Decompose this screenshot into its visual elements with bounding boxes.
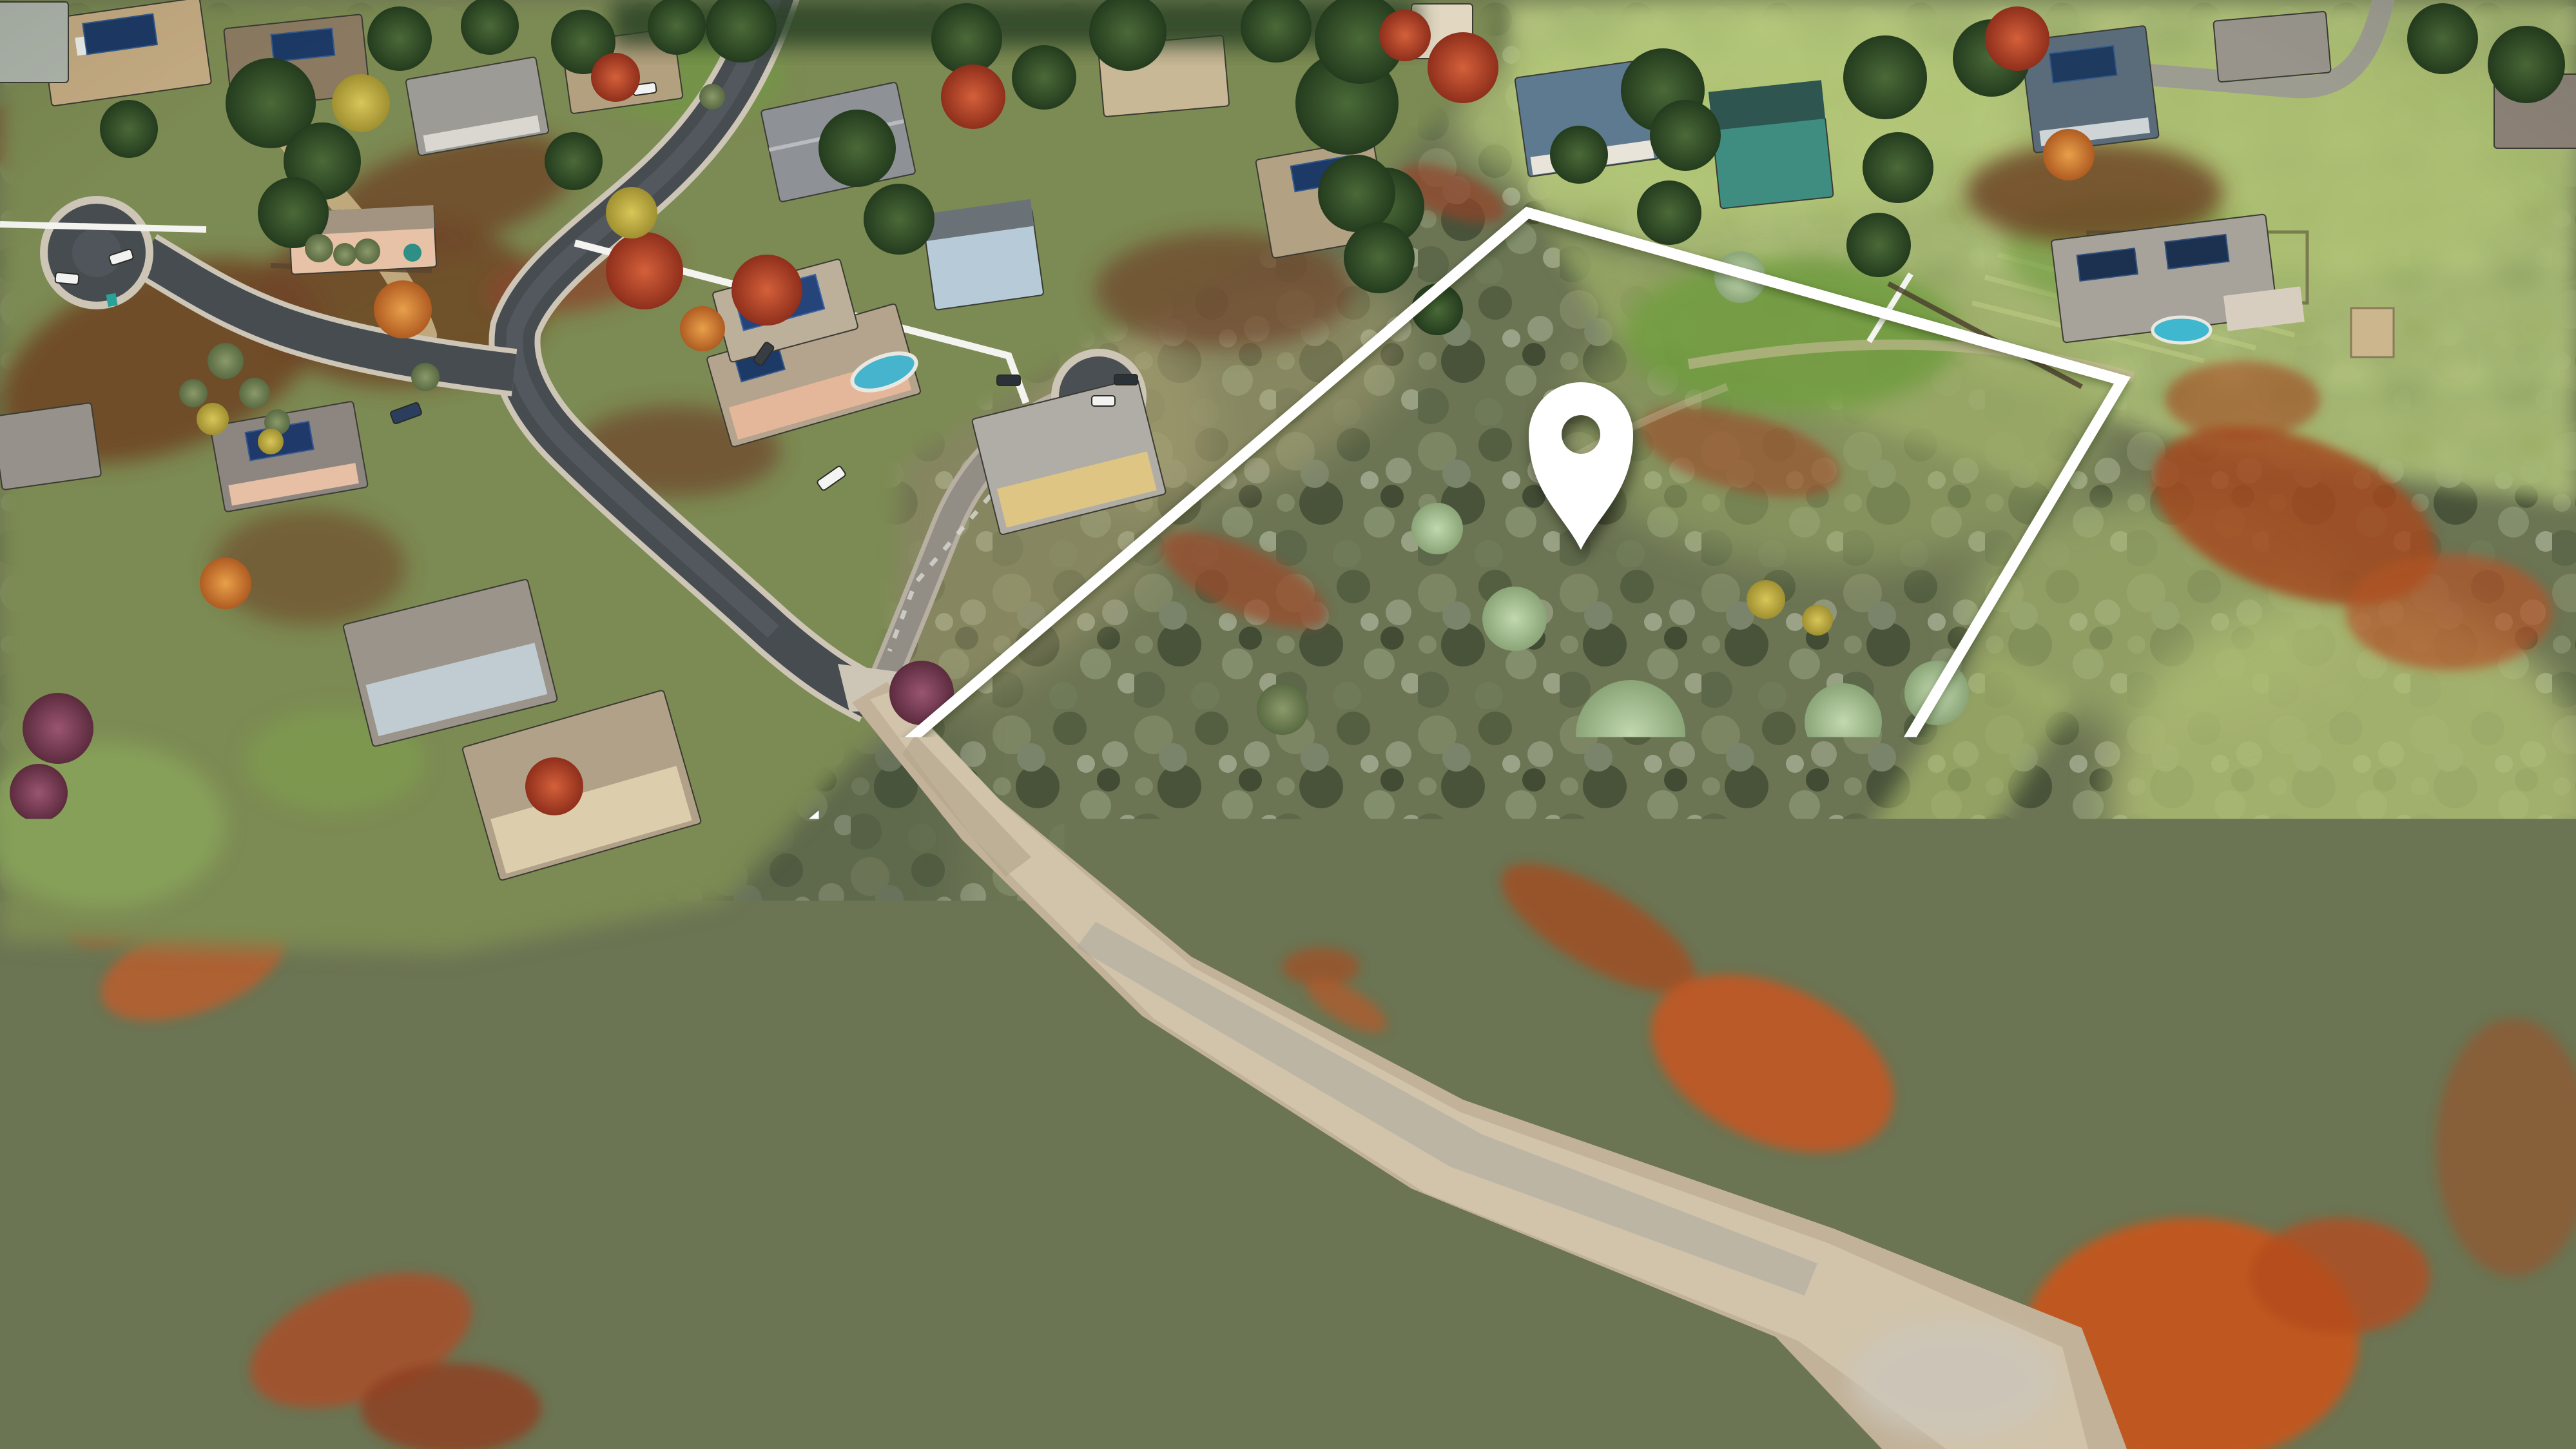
patio-umbrella — [403, 244, 421, 262]
utility-shed — [2351, 308, 2394, 357]
swimming-pool — [2153, 317, 2211, 343]
house — [0, 2, 68, 83]
house — [2213, 12, 2331, 83]
house — [922, 199, 1043, 310]
suv — [997, 375, 1020, 385]
car — [1092, 396, 1115, 406]
survey-road-marker — [1539, 1172, 1570, 1203]
suv — [1114, 374, 1138, 385]
house — [0, 403, 101, 490]
car — [55, 272, 79, 284]
aerial-photo — [0, 0, 2576, 1449]
house — [1709, 80, 1834, 208]
